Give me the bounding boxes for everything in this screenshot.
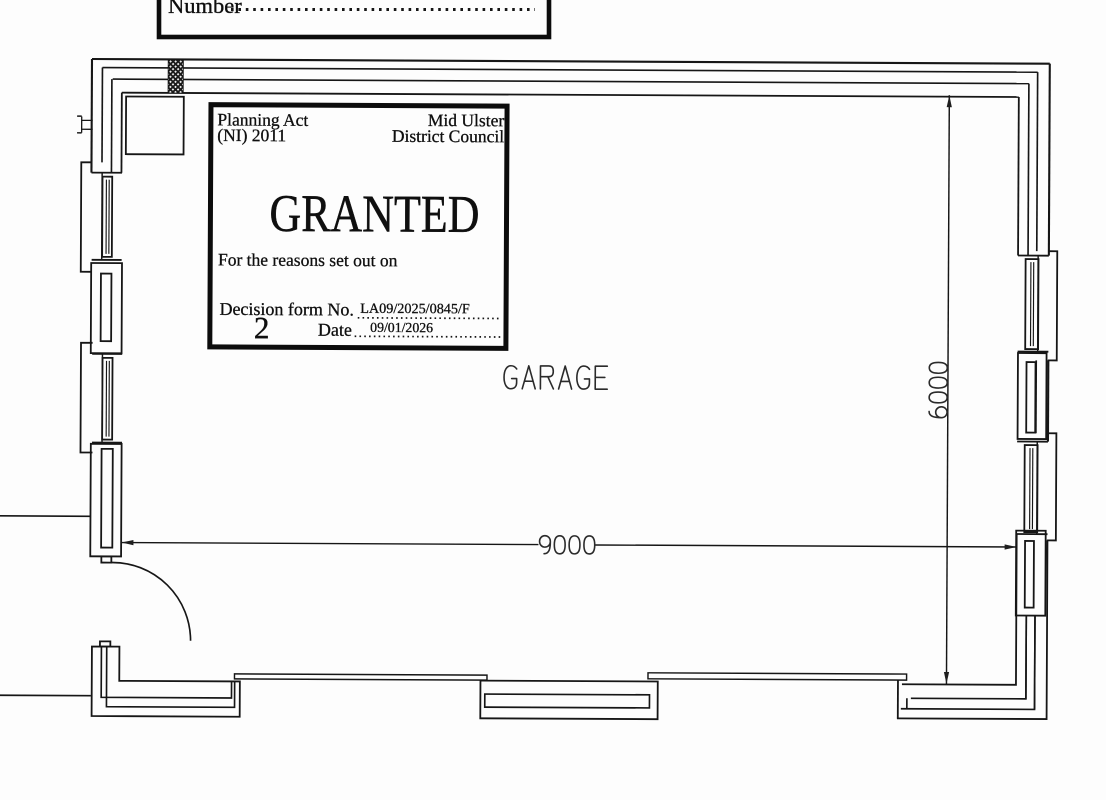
svg-text:Date: Date xyxy=(318,320,352,340)
svg-text:District Council: District Council xyxy=(392,126,505,147)
svg-text:2: 2 xyxy=(254,310,270,345)
svg-text:(NI) 2011: (NI) 2011 xyxy=(217,125,286,145)
svg-text:LA09/2025/0845/F: LA09/2025/0845/F xyxy=(360,301,470,318)
svg-text:GRANTED: GRANTED xyxy=(269,184,479,244)
svg-text:09/01/2026: 09/01/2026 xyxy=(370,320,433,335)
svg-text:For the reasons set out on: For the reasons set out on xyxy=(218,249,398,270)
svg-text:Decision form No.: Decision form No. xyxy=(219,299,354,320)
